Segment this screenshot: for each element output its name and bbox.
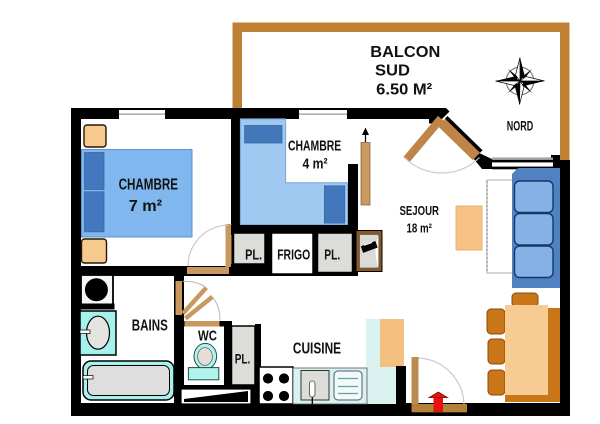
svg-text:7 m²: 7 m² xyxy=(129,198,162,215)
svg-text:18 m²: 18 m² xyxy=(406,221,432,236)
svg-text:6.50 M²: 6.50 M² xyxy=(376,82,432,99)
svg-text:WC: WC xyxy=(198,328,217,345)
svg-text:CHAMBRE: CHAMBRE xyxy=(119,176,179,193)
svg-text:4 m²: 4 m² xyxy=(303,156,328,173)
svg-text:SUD: SUD xyxy=(375,63,410,80)
svg-text:PL.: PL. xyxy=(235,351,251,367)
svg-text:CUISINE: CUISINE xyxy=(293,341,341,358)
svg-text:NORD: NORD xyxy=(507,118,534,134)
svg-text:BAINS: BAINS xyxy=(132,318,168,335)
svg-text:PL.: PL. xyxy=(324,246,340,263)
svg-text:FRIGO: FRIGO xyxy=(277,246,310,263)
svg-text:CHAMBRE: CHAMBRE xyxy=(288,138,341,155)
svg-text:BALCON: BALCON xyxy=(370,44,440,61)
svg-text:SEJOUR: SEJOUR xyxy=(399,203,439,218)
svg-text:PL.: PL. xyxy=(245,246,262,263)
